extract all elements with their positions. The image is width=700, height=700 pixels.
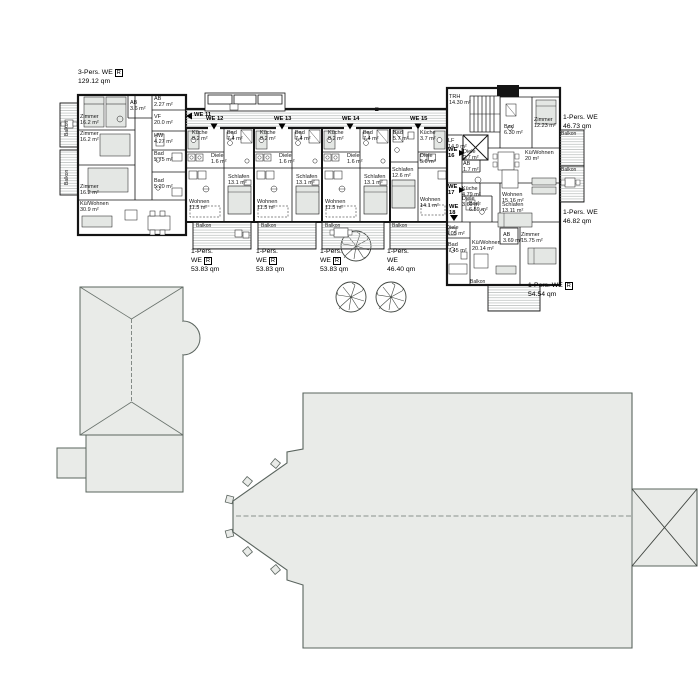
- room-label: Zimmer 16.2 m²: [80, 114, 99, 127]
- balkon-label: Balkon: [561, 132, 576, 137]
- summary-we14: 1-Pers.WE R53.83 qm: [320, 248, 348, 274]
- room-label: Bad 7.4 m²: [363, 130, 379, 143]
- room-label: Zimmer 12.23 m²: [534, 117, 556, 130]
- room-label: AB 1.7 m²: [463, 161, 479, 174]
- room-label: Küche 8.2 m²: [192, 130, 208, 143]
- room-label: Diele 1.6 m²: [279, 153, 295, 166]
- bench-structure: [205, 93, 285, 111]
- left-building-roof: [57, 287, 200, 492]
- balkon-label: Balkon: [196, 224, 211, 229]
- room-label: Bad 7.4 m²: [295, 130, 311, 143]
- wheelchair-flag: R: [204, 257, 212, 265]
- room-label: Bad 5.7 m²: [393, 130, 409, 143]
- room-label: Wohnen 14.1 m²: [420, 197, 440, 210]
- church-roof: [225, 393, 697, 648]
- room-label: TRH 14.30 m²: [449, 94, 471, 107]
- summary-we17: 1-Pers. WE46.82 qm: [563, 209, 598, 227]
- balkon-label: Balkon: [392, 224, 407, 229]
- balkon-label: Balkon: [65, 121, 70, 136]
- room-label: Wohnen 11.5 m²: [325, 199, 345, 212]
- room-label: Bad 6.30 m²: [504, 124, 523, 137]
- room-label: Küche 3.7 m²: [420, 130, 436, 143]
- wheelchair-flag: R: [269, 257, 277, 265]
- unit-label-we17: WE 17: [448, 184, 457, 196]
- room-label: Bad 6.59 m²: [469, 201, 488, 214]
- summary-we16: 1-Pers. WE46.73 qm: [563, 114, 598, 132]
- summary-we11: 3-Pers. WE R129.12 qm: [78, 69, 123, 87]
- room-label: AB 2.27 m²: [154, 96, 173, 109]
- room-label: Diele 1.6 m²: [347, 153, 363, 166]
- balcony-bottom-group: [193, 222, 447, 249]
- room-label: Kü/Wohnen 20.14 m²: [472, 240, 501, 253]
- room-label: Wohnen 11.5 m²: [257, 199, 277, 212]
- room-label: Kü/Wohnen 20 m²: [525, 150, 554, 163]
- balkon-label: Balkon: [261, 224, 276, 229]
- unit-label-we12: WE 12: [206, 116, 223, 122]
- balkon-label: Balkon: [470, 280, 485, 285]
- balkon-label: Balkon: [561, 168, 576, 173]
- room-label: Zimmer 16.2 m²: [80, 131, 99, 144]
- unit-label-we15: WE 15: [410, 116, 427, 122]
- room-label: Diele 4.05 m²: [446, 225, 465, 238]
- room-label: AB 3.6 m²: [130, 100, 146, 113]
- room-label: HW 4.27 m²: [154, 133, 173, 146]
- balkon-label: Balkon: [325, 224, 340, 229]
- wheelchair-flag: R: [115, 69, 123, 77]
- wheelchair-flag: R: [333, 257, 341, 265]
- room-label: VF 20.0 m²: [154, 114, 173, 127]
- room-label: Diele 5.0 m²: [420, 153, 436, 166]
- stairs-icon: [470, 96, 500, 132]
- summary-we18: 1-Pers. WE R54.54 qm: [528, 282, 573, 300]
- plan-linework: [0, 0, 700, 700]
- floor-plan-canvas: 3-Pers. WE R129.12 qm 1-Pers.WE R53.83 q…: [0, 0, 700, 700]
- room-label: Küche 8.2 m²: [260, 130, 276, 143]
- summary-we15: 1-Pers.WE46.40 qm: [387, 248, 415, 274]
- room-label: Küche 8.2 m²: [328, 130, 344, 143]
- room-label: Schlafen 13.1 m²: [228, 174, 249, 187]
- unit-label-we13: WE 13: [274, 116, 291, 122]
- summary-we12: 1-Pers.WE R53.83 qm: [191, 248, 219, 274]
- room-label: Bad 5.20 m²: [154, 178, 173, 191]
- room-label: Schlafen 13.1 m²: [364, 174, 385, 187]
- balkon-label: Balkon: [65, 170, 70, 185]
- room-label: Schlafen 13.1 m²: [296, 174, 317, 187]
- room-label: Diele 2.7 m²: [463, 149, 479, 162]
- wing: [447, 85, 560, 285]
- unit-label-we14: WE 14: [342, 116, 359, 122]
- room-label: AB 3.69 m²: [503, 232, 522, 245]
- wheelchair-flag: R: [565, 282, 573, 290]
- room-label: Bad 7.45 m²: [448, 242, 467, 255]
- room-label: Schlafen 12.6 m²: [392, 167, 413, 180]
- room-label: Kü/Wohnen 30.9 m²: [80, 201, 109, 214]
- room-label: Wohnen 11.5 m²: [189, 199, 209, 212]
- room-label: Bad 7.4 m²: [227, 130, 243, 143]
- room-label: Bad 5.75 m²: [154, 151, 173, 164]
- unit-label-we18: WE 18: [449, 204, 458, 216]
- room-label: Zimmer 15.75 m²: [521, 232, 543, 245]
- room-label: Zimmer 16.2 m²: [80, 184, 99, 197]
- summary-we13: 1-Pers.WE R53.83 qm: [256, 248, 284, 274]
- room-label: Schlafen 13.11 m²: [502, 202, 523, 215]
- room-label: Diele 1.6 m²: [211, 153, 227, 166]
